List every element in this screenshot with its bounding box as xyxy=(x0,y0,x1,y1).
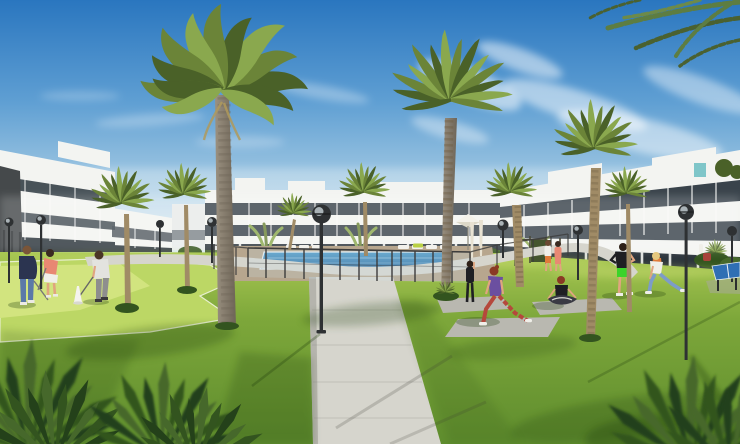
render-viewport xyxy=(0,0,740,444)
scene-canvas xyxy=(0,0,740,444)
teal-glass-accent xyxy=(694,163,706,177)
